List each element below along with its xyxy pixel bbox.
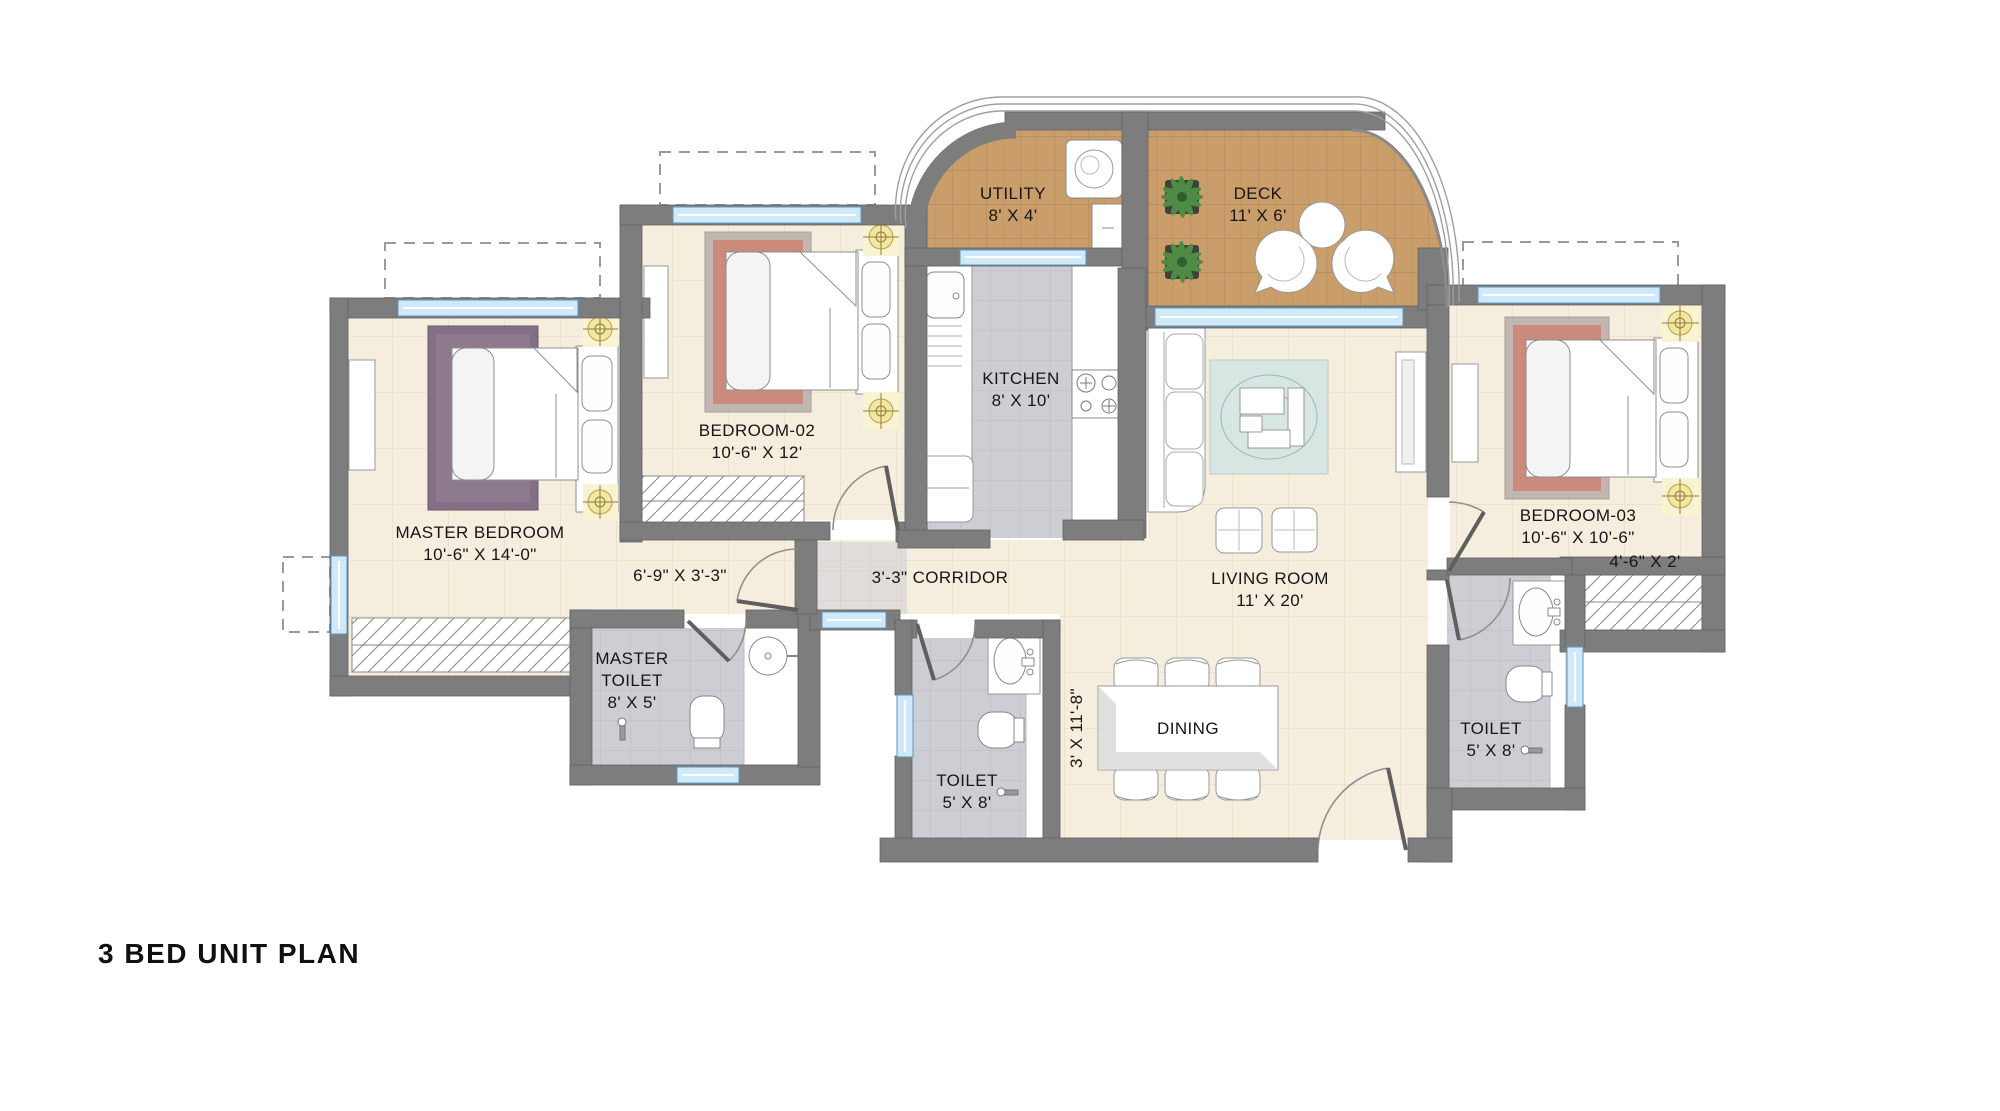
room-name: DECK bbox=[1229, 183, 1287, 205]
room-dims: 10'-6" X 10'-6" bbox=[1520, 527, 1636, 549]
room-name: BEDROOM-02 bbox=[699, 420, 815, 442]
ottoman bbox=[1272, 508, 1317, 552]
basin-mid bbox=[994, 638, 1026, 684]
room-dims: 5' X 8' bbox=[1460, 740, 1522, 762]
label-bedroom02: BEDROOM-02 10'-6" X 12' bbox=[699, 420, 815, 464]
room-name: DINING bbox=[1157, 718, 1219, 740]
projection-bedroom03 bbox=[1463, 242, 1678, 288]
lamp-icon bbox=[1662, 305, 1699, 342]
room-name: MASTER TOILET bbox=[576, 648, 688, 692]
corridor-name: 3'-3" CORRIDOR bbox=[872, 567, 1009, 589]
corridor-dims: 6'-9" X 3'-3" bbox=[633, 565, 727, 587]
room-dims: 11' X 20' bbox=[1211, 590, 1329, 612]
basin-master bbox=[749, 637, 787, 675]
label-living-room: LIVING ROOM 11' X 20' bbox=[1211, 568, 1329, 612]
ottoman bbox=[1216, 508, 1262, 553]
dresser-bedroom02 bbox=[644, 266, 668, 378]
label-master-toilet: MASTER TOILET 8' X 5' bbox=[576, 648, 688, 713]
label-master-bedroom: MASTER BEDROOM 10'-6" X 14'-0" bbox=[395, 522, 564, 566]
wardrobe-dims: 4'-6" X 2' bbox=[1609, 551, 1680, 573]
label-bedroom03-wardrobe-dims: 4'-6" X 2' bbox=[1609, 551, 1680, 573]
room-dims: 5' X 8' bbox=[936, 792, 998, 814]
label-bedroom03: BEDROOM-03 10'-6" X 10'-6" bbox=[1520, 505, 1636, 549]
label-utility: UTILITY 8' X 4' bbox=[980, 183, 1046, 227]
label-toilet-right: TOILET 5' X 8' bbox=[1460, 718, 1522, 762]
projection-master-left bbox=[283, 557, 330, 632]
room-dims: 8' X 4' bbox=[980, 205, 1046, 227]
lamp-icon bbox=[583, 484, 618, 520]
room-dims: 3' X 11'-8" bbox=[1066, 688, 1088, 768]
room-dims: 10'-6" X 12' bbox=[699, 442, 815, 464]
room-dims: 11' X 6' bbox=[1229, 205, 1287, 227]
label-toilet-mid: TOILET 5' X 8' bbox=[936, 770, 998, 814]
room-dims: 10'-6" X 14'-0" bbox=[395, 544, 564, 566]
bed-bedroom02 bbox=[726, 250, 898, 394]
room-name: UTILITY bbox=[980, 183, 1046, 205]
label-kitchen: KITCHEN 8' X 10' bbox=[982, 368, 1059, 412]
label-corridor-left-dims: 6'-9" X 3'-3" bbox=[633, 565, 727, 587]
plan-title: 3 BED UNIT PLAN bbox=[98, 938, 360, 970]
label-dining: DINING bbox=[1157, 718, 1219, 740]
room-name: TOILET bbox=[1460, 718, 1522, 740]
room-dims: 8' X 10' bbox=[982, 390, 1059, 412]
room-name: BEDROOM-03 bbox=[1520, 505, 1636, 527]
room-name: TOILET bbox=[936, 770, 998, 792]
wc-mid bbox=[978, 712, 1018, 748]
label-dining-dims: 3' X 11'-8" bbox=[1066, 688, 1088, 768]
bed-bedroom03 bbox=[1526, 338, 1698, 482]
lamp-icon bbox=[863, 392, 899, 430]
label-corridor: 3'-3" CORRIDOR bbox=[872, 567, 1009, 589]
room-name: KITCHEN bbox=[982, 368, 1059, 390]
label-deck: DECK 11' X 6' bbox=[1229, 183, 1287, 227]
rug-living bbox=[1210, 360, 1328, 474]
lamp-icon bbox=[1662, 478, 1699, 515]
room-name: MASTER BEDROOM bbox=[395, 522, 564, 544]
washing-machine bbox=[1066, 140, 1122, 198]
room-name: LIVING ROOM bbox=[1211, 568, 1329, 590]
wc-master bbox=[690, 696, 724, 742]
plant-icon bbox=[1161, 176, 1203, 218]
kitchen-stove bbox=[1072, 370, 1122, 418]
dresser-master bbox=[349, 360, 375, 470]
plant-icon bbox=[1161, 241, 1203, 283]
room-dims: 8' X 5' bbox=[576, 692, 688, 714]
projection-master-bedroom bbox=[385, 243, 600, 298]
projection-bedroom02 bbox=[660, 152, 875, 205]
floor-plan-canvas: UTILITY 8' X 4' DECK 11' X 6' KITCHEN 8'… bbox=[0, 0, 2000, 1111]
dresser-bedroom03 bbox=[1452, 364, 1478, 462]
wc-right bbox=[1506, 666, 1546, 702]
